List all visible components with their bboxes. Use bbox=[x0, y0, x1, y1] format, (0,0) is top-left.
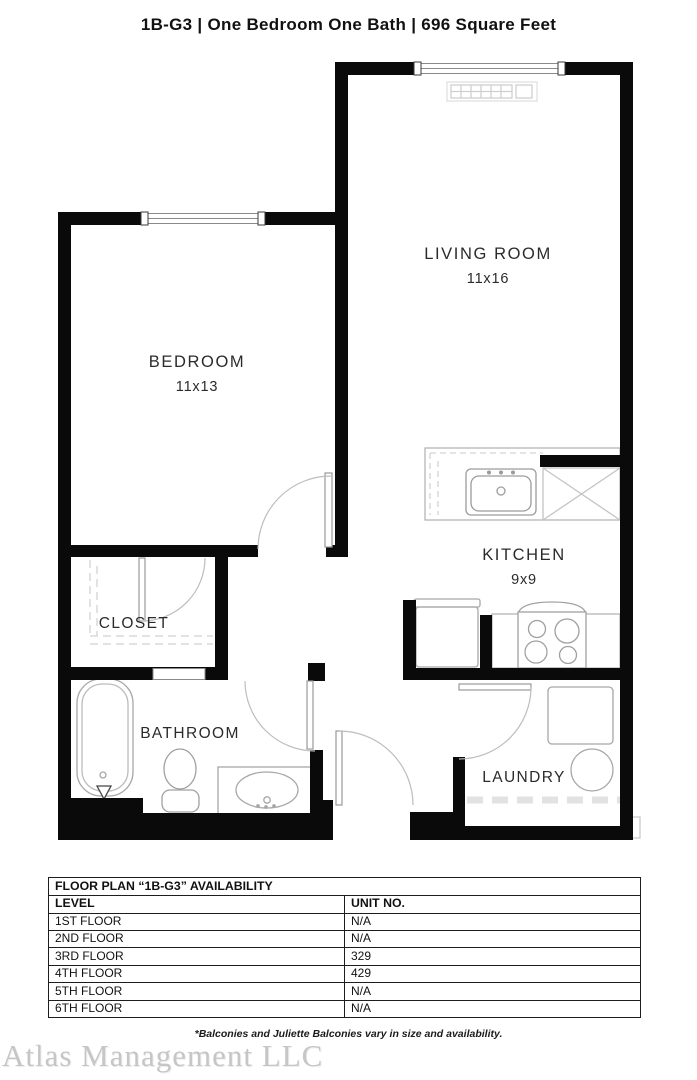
kitchen-label: KITCHEN bbox=[482, 546, 566, 564]
living-room-label: LIVING ROOM bbox=[424, 245, 552, 263]
stove bbox=[492, 602, 620, 668]
unit-cell: N/A bbox=[345, 913, 641, 930]
bathtub bbox=[77, 679, 133, 799]
laundry-label: LAUNDRY bbox=[482, 769, 566, 786]
living-room-dims: 11x16 bbox=[467, 271, 509, 287]
column-header-level: LEVEL bbox=[49, 895, 345, 913]
column-header-unit-no: UNIT NO. bbox=[345, 895, 641, 913]
level-cell: 2ND FLOOR bbox=[49, 930, 345, 947]
refrigerator bbox=[414, 599, 480, 667]
floor-plan-page: 1B-G3 | One Bedroom One Bath | 696 Squar… bbox=[0, 0, 697, 1080]
closet-label: CLOSET bbox=[99, 615, 169, 632]
unit-cell: 329 bbox=[345, 948, 641, 965]
table-row: 4TH FLOOR 429 bbox=[49, 965, 641, 982]
bedroom-dims: 11x13 bbox=[176, 379, 218, 395]
bedroom-window bbox=[141, 212, 265, 225]
heater-grille bbox=[447, 82, 537, 101]
company-watermark: Atlas Management LLC bbox=[2, 1038, 323, 1074]
bathroom-label: BATHROOM bbox=[140, 725, 240, 742]
bedroom-label: BEDROOM bbox=[149, 353, 245, 371]
bathroom-transom-window bbox=[153, 669, 205, 680]
level-cell: 4TH FLOOR bbox=[49, 965, 345, 982]
table-row: 5TH FLOOR N/A bbox=[49, 983, 641, 1000]
bedroom-door bbox=[258, 473, 332, 549]
kitchen-sink bbox=[466, 469, 536, 515]
level-cell: 5TH FLOOR bbox=[49, 983, 345, 1000]
table-row: 3RD FLOOR 329 bbox=[49, 948, 641, 965]
living-room-window bbox=[414, 62, 565, 75]
unit-cell: N/A bbox=[345, 930, 641, 947]
table-header-row: LEVEL UNIT NO. bbox=[49, 895, 641, 913]
unit-cell: 429 bbox=[345, 965, 641, 982]
level-cell: 1ST FLOOR bbox=[49, 913, 345, 930]
bathroom-door bbox=[245, 681, 315, 751]
toilet bbox=[162, 749, 199, 812]
entry-door bbox=[336, 731, 413, 805]
table-row: 1ST FLOOR N/A bbox=[49, 913, 641, 930]
level-cell: 6TH FLOOR bbox=[49, 1000, 345, 1017]
washer bbox=[548, 687, 613, 744]
dryer bbox=[571, 749, 613, 791]
exterior-notch bbox=[633, 817, 640, 838]
table-row: 6TH FLOOR N/A bbox=[49, 1000, 641, 1017]
closet-door bbox=[139, 558, 205, 621]
kitchen-dims: 9x9 bbox=[511, 572, 537, 588]
unit-cell: N/A bbox=[345, 983, 641, 1000]
sink-vanity bbox=[218, 767, 318, 814]
walls bbox=[58, 62, 633, 840]
table-row: 2ND FLOOR N/A bbox=[49, 930, 641, 947]
unit-cell: N/A bbox=[345, 1000, 641, 1017]
dishwasher-space bbox=[543, 468, 620, 520]
level-cell: 3RD FLOOR bbox=[49, 948, 345, 965]
table-title: FLOOR PLAN “1B-G3” AVAILABILITY bbox=[49, 878, 641, 896]
floor-plan-drawing: LIVING ROOM 11x16 BEDROOM 11x13 KITCHEN … bbox=[0, 0, 697, 860]
laundry-door bbox=[459, 684, 531, 759]
availability-table: FLOOR PLAN “1B-G3” AVAILABILITY LEVEL UN… bbox=[48, 877, 641, 1018]
